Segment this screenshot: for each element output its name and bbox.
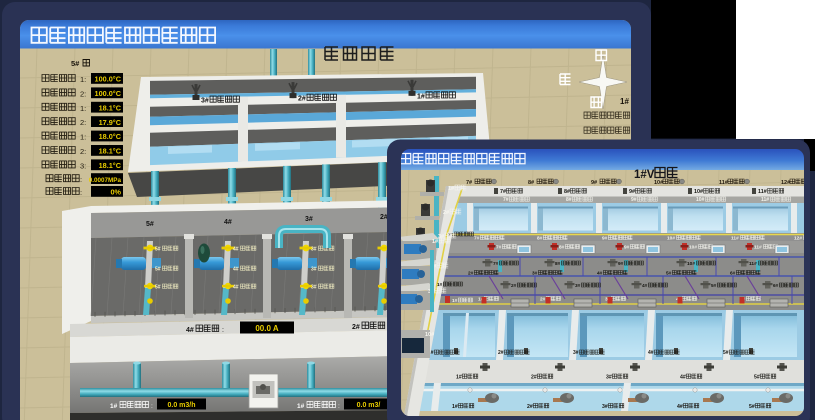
svg-text:4#: 4# — [680, 374, 686, 380]
svg-text:3#: 3# — [311, 285, 317, 291]
svg-text:7#: 7# — [474, 236, 480, 242]
svg-text:2#: 2# — [352, 324, 360, 331]
svg-text:2:: 2: — [80, 147, 86, 156]
svg-text:8#: 8# — [537, 236, 543, 242]
svg-text:2#: 2# — [380, 214, 388, 221]
svg-text::: : — [80, 188, 82, 197]
svg-text:4#: 4# — [648, 350, 654, 356]
svg-text:8#: 8# — [555, 261, 561, 267]
svg-text:5#: 5# — [666, 271, 672, 277]
svg-text::: : — [338, 403, 340, 410]
svg-text:4#: 4# — [233, 247, 239, 253]
svg-text:4#: 4# — [677, 404, 683, 410]
svg-text:0%: 0% — [110, 188, 121, 197]
svg-text:1#: 1# — [417, 93, 425, 100]
svg-text:5#: 5# — [155, 267, 161, 273]
svg-text:1#: 1# — [620, 97, 629, 106]
svg-text:1:: 1: — [80, 104, 86, 113]
svg-text:8#: 8# — [528, 180, 534, 186]
svg-text:3#: 3# — [606, 374, 612, 380]
svg-text:3#: 3# — [575, 283, 581, 289]
svg-text:10#: 10# — [667, 236, 675, 242]
svg-text:0.0007MPa: 0.0007MPa — [89, 177, 122, 184]
svg-text:9#: 9# — [629, 189, 635, 195]
svg-text:12#: 12# — [794, 236, 802, 242]
svg-text:100.0°C: 100.0°C — [95, 75, 122, 84]
svg-text:9#: 9# — [618, 261, 624, 267]
svg-text:18.1°C: 18.1°C — [99, 161, 122, 170]
svg-text:7#: 7# — [496, 245, 502, 251]
svg-text:1#: 1# — [432, 239, 438, 245]
svg-text:3#: 3# — [602, 404, 608, 410]
svg-text:1#V: 1#V — [634, 169, 655, 181]
svg-text:5#: 5# — [723, 350, 729, 356]
svg-text:4#: 4# — [224, 219, 232, 226]
svg-text:3#: 3# — [201, 98, 209, 105]
svg-text::: : — [80, 175, 82, 184]
svg-text:8#: 8# — [559, 245, 565, 251]
svg-text:2:: 2: — [80, 118, 86, 127]
svg-text:10#: 10# — [654, 180, 663, 186]
svg-text:10#: 10# — [687, 261, 695, 267]
svg-text:10#: 10# — [694, 189, 703, 195]
svg-text::: : — [151, 403, 153, 410]
svg-text:9#: 9# — [602, 236, 608, 242]
svg-text:11#: 11# — [719, 180, 728, 186]
svg-text:8#: 8# — [566, 197, 572, 203]
svg-text:5#: 5# — [146, 221, 154, 228]
svg-text:2#: 2# — [298, 96, 306, 103]
svg-text:7#: 7# — [500, 189, 506, 195]
svg-text:1:: 1: — [80, 133, 86, 142]
svg-text:9#: 9# — [624, 245, 630, 251]
svg-text:7#: 7# — [503, 197, 509, 203]
svg-text:4#: 4# — [186, 327, 194, 334]
svg-text:10#: 10# — [696, 197, 705, 203]
svg-text:100.0°C: 100.0°C — [95, 89, 122, 98]
svg-text:2#: 2# — [498, 350, 504, 356]
svg-text:0.0 m3/: 0.0 m3/ — [357, 402, 381, 409]
svg-text:5#: 5# — [155, 247, 161, 253]
svg-text:17.9°C: 17.9°C — [99, 118, 122, 127]
svg-text:2:: 2: — [80, 89, 86, 98]
svg-text:1#: 1# — [110, 403, 118, 410]
svg-text:00.0 A: 00.0 A — [255, 324, 278, 333]
svg-text:1#: 1# — [297, 403, 305, 410]
svg-text:8#: 8# — [564, 189, 570, 195]
svg-text:2#: 2# — [527, 404, 533, 410]
svg-text:3:: 3: — [80, 161, 86, 170]
svg-text:6#: 6# — [773, 283, 779, 289]
svg-text:4#: 4# — [597, 271, 603, 277]
svg-text:6#: 6# — [730, 271, 736, 277]
svg-text:1#: 1# — [448, 186, 454, 192]
svg-text:9#: 9# — [591, 180, 597, 186]
svg-text:1#: 1# — [437, 282, 443, 288]
svg-text:3#: 3# — [305, 216, 313, 223]
svg-text:2#: 2# — [511, 283, 517, 289]
svg-text:3#: 3# — [311, 267, 317, 273]
svg-text:7#: 7# — [493, 261, 499, 267]
svg-text:18.1°C: 18.1°C — [99, 147, 122, 156]
svg-text:11#: 11# — [749, 261, 757, 267]
svg-text:2#: 2# — [443, 210, 449, 216]
svg-text:5#: 5# — [749, 404, 755, 410]
svg-text:5#: 5# — [155, 285, 161, 291]
svg-text:0.0 m3/h: 0.0 m3/h — [167, 402, 195, 409]
svg-text:3#: 3# — [311, 247, 317, 253]
svg-text:2#: 2# — [531, 374, 537, 380]
svg-text:2#: 2# — [468, 271, 474, 277]
svg-text:18.0°C: 18.0°C — [99, 132, 122, 141]
svg-text:4#: 4# — [233, 285, 239, 291]
svg-text:1#: 1# — [452, 404, 458, 410]
svg-text:10#: 10# — [425, 332, 434, 338]
svg-text:12#: 12# — [781, 180, 790, 186]
svg-text:18.1°C: 18.1°C — [99, 103, 122, 112]
svg-text:1:: 1: — [80, 75, 86, 84]
svg-text:5#: 5# — [711, 283, 717, 289]
svg-text::: : — [222, 327, 224, 334]
svg-text:11#: 11# — [761, 197, 769, 203]
svg-text:11#: 11# — [754, 245, 762, 251]
svg-text:9#: 9# — [631, 197, 637, 203]
svg-text:5#: 5# — [754, 374, 760, 380]
svg-text:3#: 3# — [532, 271, 538, 277]
svg-text:3#: 3# — [573, 350, 579, 356]
svg-text:11#: 11# — [758, 189, 767, 195]
svg-text:1#: 1# — [452, 298, 458, 304]
svg-text:5#: 5# — [71, 59, 80, 68]
svg-text:11#: 11# — [731, 236, 739, 242]
svg-text:4#: 4# — [642, 283, 648, 289]
svg-text:1#: 1# — [456, 374, 462, 380]
svg-text:4#: 4# — [233, 267, 239, 273]
svg-text:7#: 7# — [466, 180, 472, 186]
svg-text:10#: 10# — [689, 245, 697, 251]
svg-text:2#: 2# — [540, 297, 546, 303]
